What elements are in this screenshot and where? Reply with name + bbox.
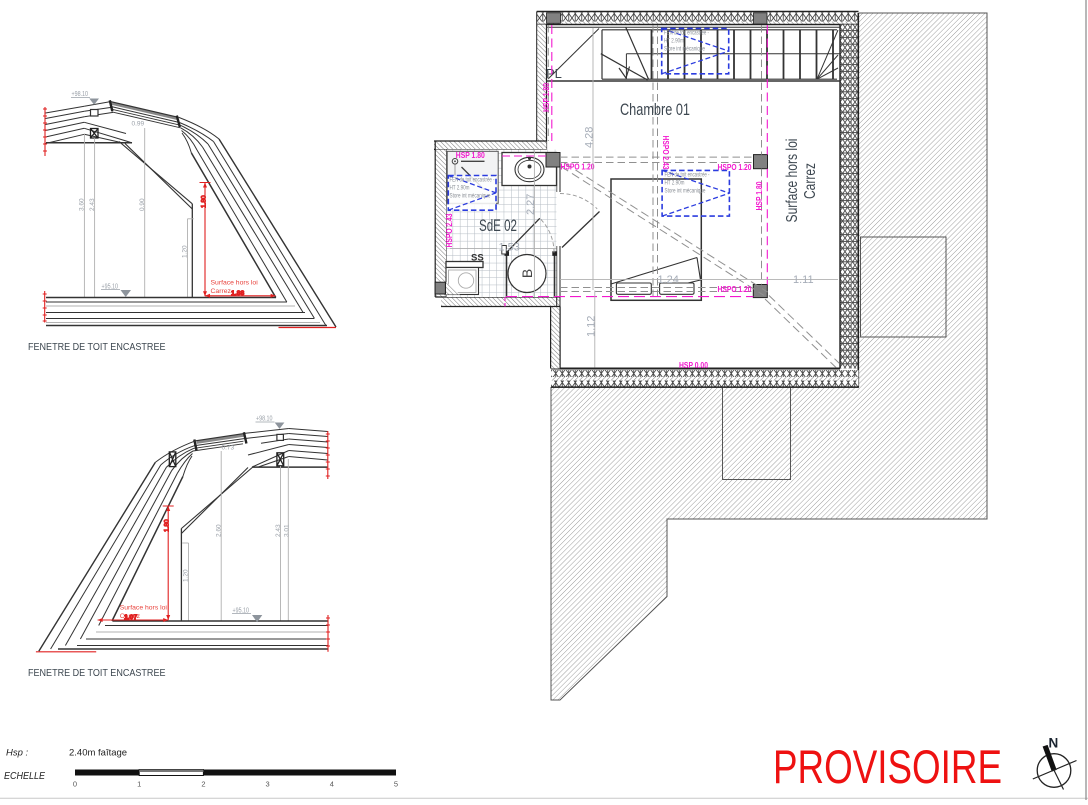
svg-text:2.40m faîtage: 2.40m faîtage: [69, 748, 127, 759]
svg-text:0.90: 0.90: [139, 198, 146, 211]
svg-text:2.60: 2.60: [215, 524, 222, 537]
svg-text:HSPO 1.20: HSPO 1.20: [718, 285, 753, 294]
svg-text:2: 2: [201, 780, 205, 789]
svg-text:4: 4: [330, 780, 334, 789]
svg-text:HSP 1.80: HSP 1.80: [755, 181, 764, 211]
svg-text:Carrez: Carrez: [211, 288, 232, 295]
svg-text:2.27: 2.27: [525, 194, 537, 215]
svg-text:HSPO 1.20: HSPO 1.20: [718, 163, 753, 172]
svg-text:HSP 1.80: HSP 1.80: [456, 151, 486, 160]
svg-text:PROVISOIRE: PROVISOIRE: [773, 740, 1002, 793]
svg-text:+98.10: +98.10: [72, 91, 89, 98]
svg-text:SdE 02: SdE 02: [479, 217, 517, 235]
svg-text:3: 3: [266, 780, 270, 789]
svg-text:1.80: 1.80: [164, 519, 171, 532]
svg-text:Surface hors loi: Surface hors loi: [120, 605, 168, 612]
svg-text:N: N: [1049, 736, 1059, 751]
svg-text:HT 2.90m: HT 2.90m: [665, 180, 685, 187]
svg-text:FEN de toit encastrée -: FEN de toit encastrée -: [664, 30, 709, 37]
svg-text:+98.10: +98.10: [256, 416, 273, 423]
svg-text:Surface hors loi: Surface hors loi: [784, 139, 801, 223]
svg-text:1.80: 1.80: [200, 195, 207, 208]
svg-text:Store int mécanique: Store int mécanique: [664, 46, 705, 53]
svg-text:Chambre 01: Chambre 01: [620, 101, 690, 119]
svg-text:1.24: 1.24: [658, 274, 679, 286]
svg-text:FENETRE DE TOIT ENCASTREE: FENETRE DE TOIT ENCASTREE: [28, 667, 166, 679]
svg-text:B: B: [519, 269, 535, 278]
svg-text:1.11: 1.11: [793, 274, 814, 286]
svg-text:FENETRE DE TOIT ENCASTREE: FENETRE DE TOIT ENCASTREE: [28, 341, 166, 353]
svg-text:1.12: 1.12: [586, 316, 598, 337]
svg-text:3.60: 3.60: [79, 198, 86, 211]
svg-text:Surface hors loi: Surface hors loi: [211, 280, 259, 287]
svg-text:ECHELLE: ECHELLE: [4, 771, 45, 782]
svg-text:HSPO 2.43: HSPO 2.43: [445, 213, 454, 248]
svg-text:1.07: 1.07: [124, 614, 137, 621]
svg-text:1.20: 1.20: [181, 245, 188, 258]
svg-text:2.43: 2.43: [275, 524, 282, 537]
svg-text:4.28: 4.28: [584, 127, 596, 148]
svg-text:Carrez: Carrez: [802, 163, 819, 199]
svg-text:0: 0: [73, 780, 77, 789]
svg-text:HT 2.90m: HT 2.90m: [664, 38, 684, 45]
svg-text:5: 5: [394, 780, 398, 789]
svg-text:Store int mécanique: Store int mécanique: [450, 193, 491, 200]
svg-text:3.01: 3.01: [283, 524, 290, 537]
svg-text:Hsp :: Hsp :: [6, 748, 29, 759]
svg-text:FEN de toit encastrée -: FEN de toit encastrée -: [450, 177, 495, 184]
svg-text:1.20: 1.20: [182, 569, 189, 582]
svg-text:HSPO 1.20: HSPO 1.20: [561, 163, 596, 172]
svg-text:0.99: 0.99: [132, 121, 145, 128]
svg-text:0.73: 0.73: [222, 445, 235, 452]
svg-text:HSP 1.80: HSP 1.80: [542, 82, 551, 112]
svg-text:HT 2.90m: HT 2.90m: [450, 185, 470, 192]
svg-text:1: 1: [137, 780, 141, 789]
svg-text:Store int mécanique: Store int mécanique: [665, 188, 706, 195]
svg-text:HSP 0.00: HSP 0.00: [679, 361, 709, 370]
svg-text:HSPO 2.43: HSPO 2.43: [661, 136, 670, 171]
svg-text:1.88: 1.88: [231, 290, 244, 297]
svg-text:1.53: 1.53: [499, 242, 520, 254]
svg-text:FEN de toit encastrée -: FEN de toit encastrée -: [665, 172, 710, 179]
svg-text:2.43: 2.43: [89, 198, 96, 211]
